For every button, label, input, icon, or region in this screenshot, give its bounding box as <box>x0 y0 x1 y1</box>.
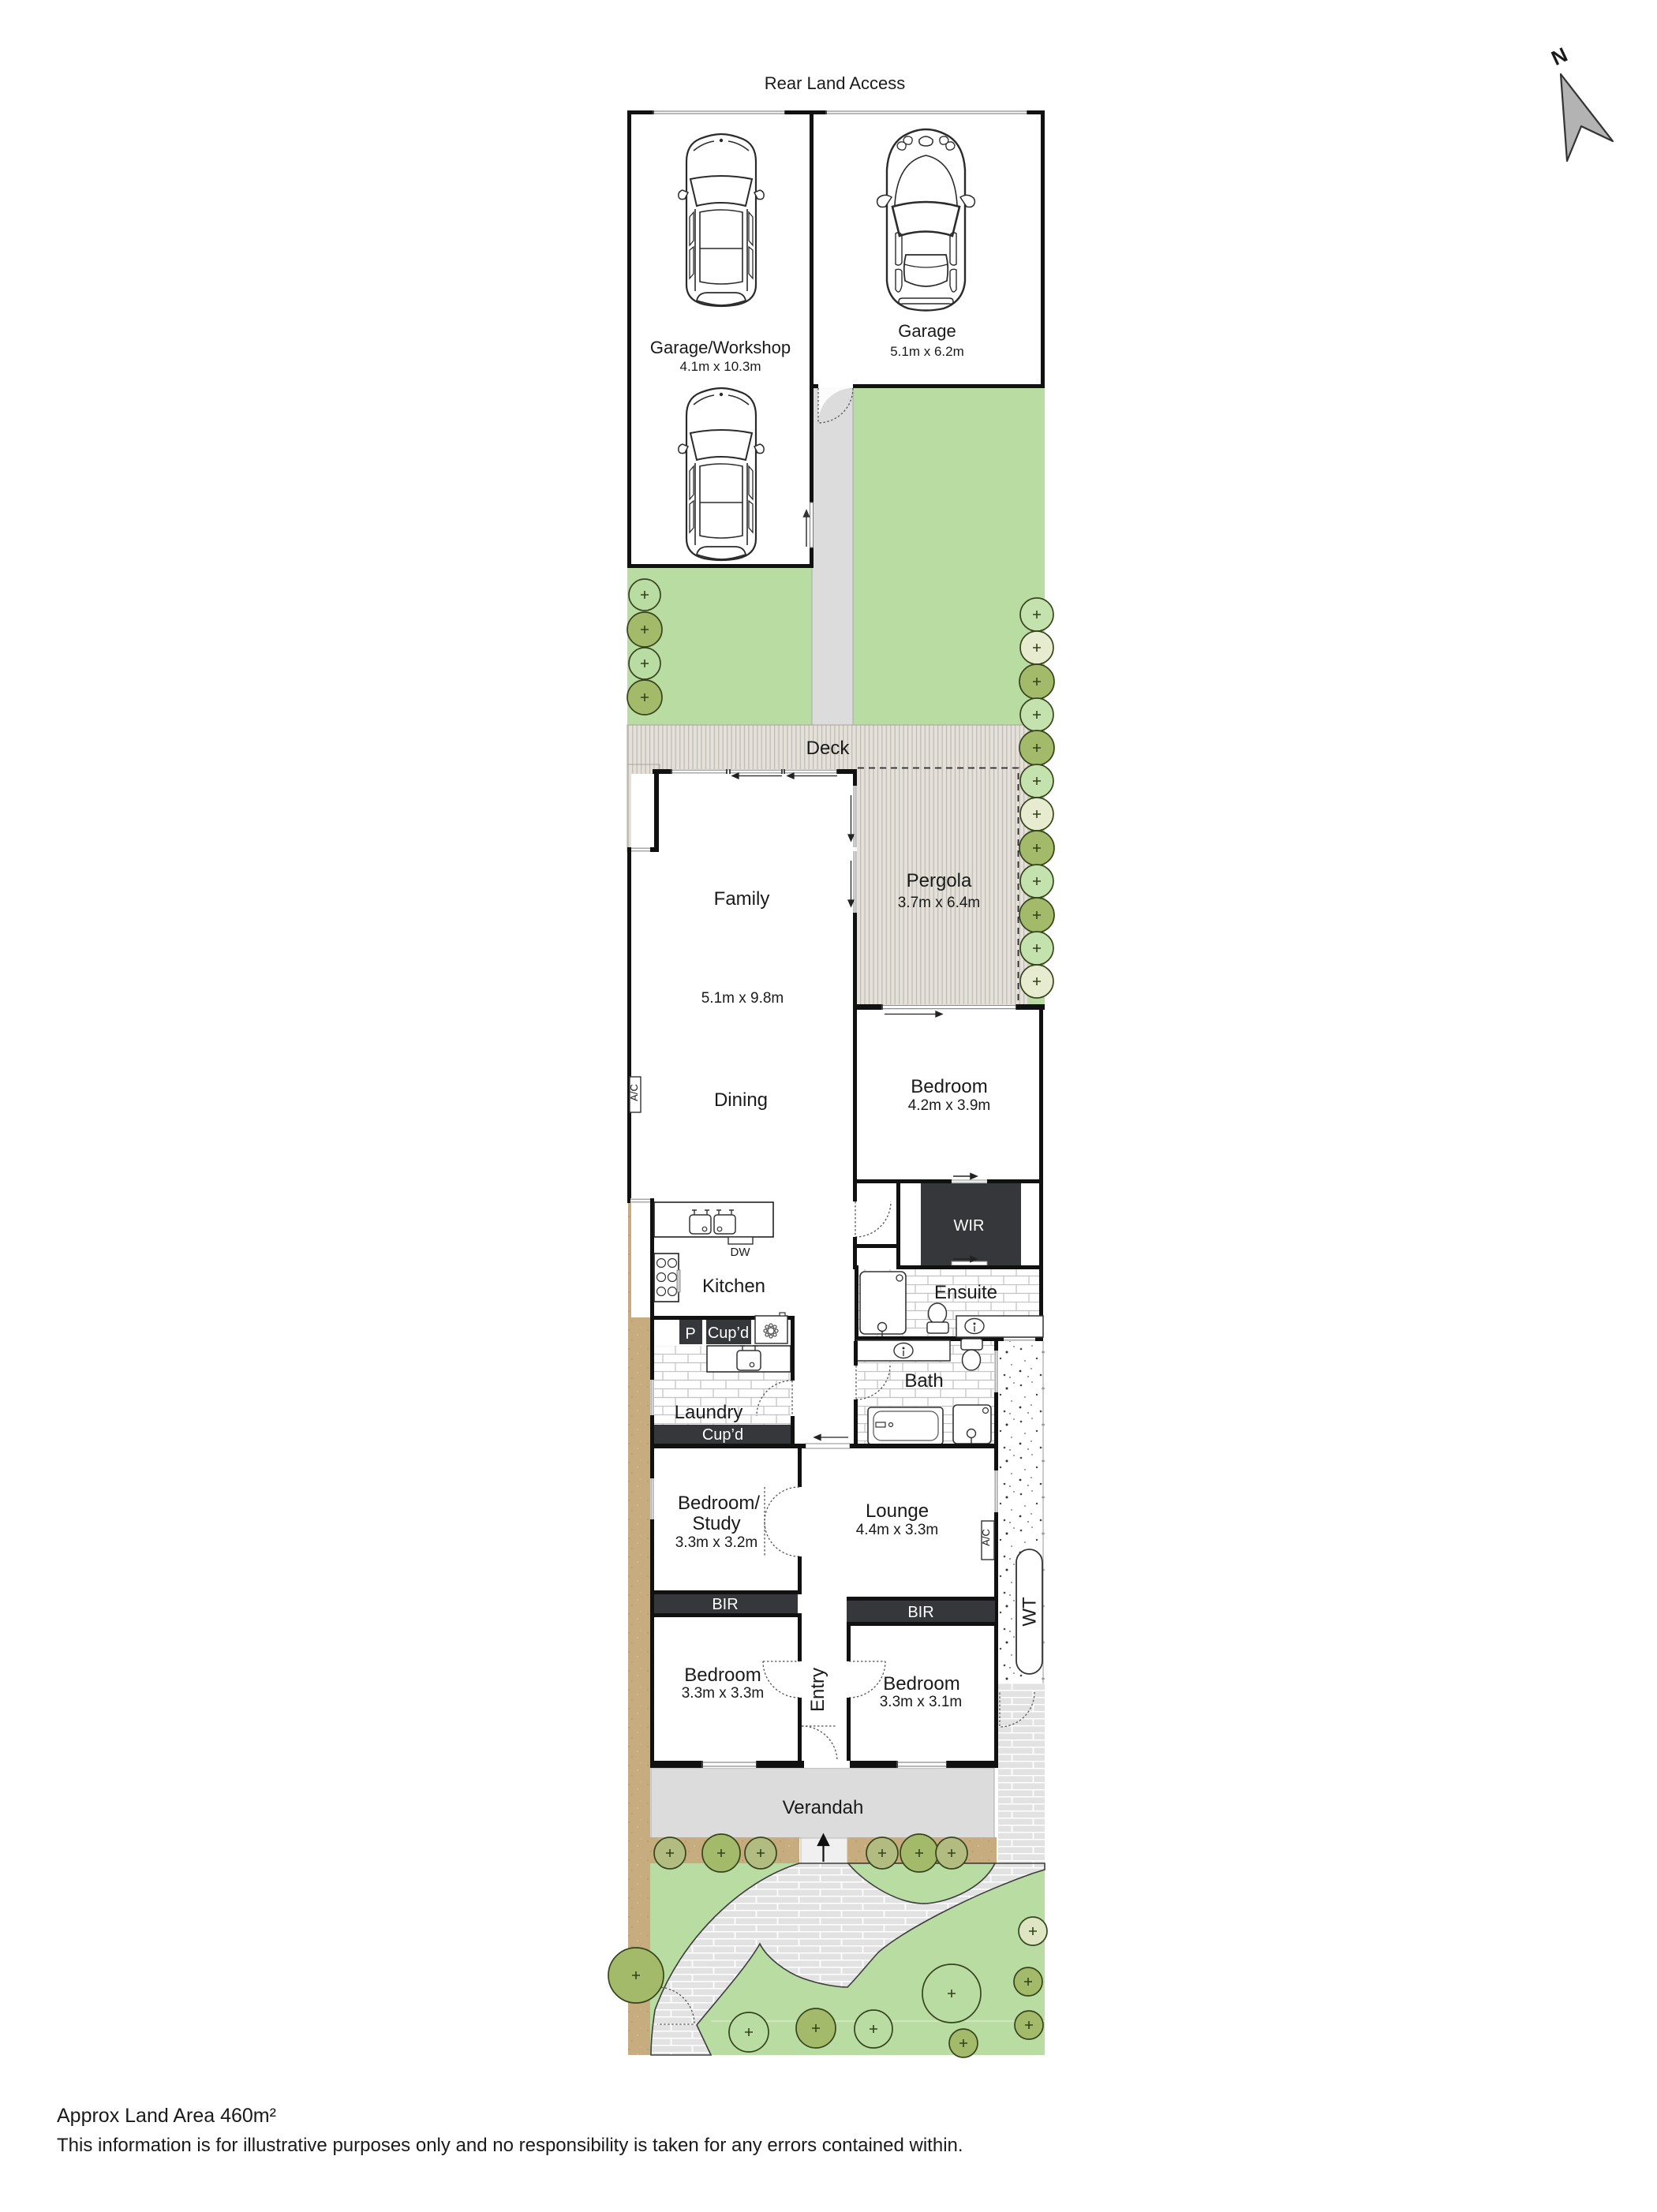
svg-text:Ensuite: Ensuite <box>934 1282 997 1303</box>
svg-text:Pergola: Pergola <box>907 870 972 891</box>
svg-text:Bedroom/: Bedroom/ <box>678 1493 760 1514</box>
svg-text:WT: WT <box>1019 1597 1041 1627</box>
svg-text:3.7m x 6.4m: 3.7m x 6.4m <box>898 895 981 911</box>
svg-text:A/C: A/C <box>980 1529 992 1546</box>
svg-text:4.1m x 10.3m: 4.1m x 10.3m <box>680 359 761 374</box>
svg-text:BIR: BIR <box>907 1604 933 1621</box>
svg-text:This information is for illust: This information is for illustrative pur… <box>57 2135 963 2156</box>
svg-text:Entry: Entry <box>807 1668 828 1712</box>
svg-text:Garage: Garage <box>898 321 956 341</box>
svg-text:Bedroom: Bedroom <box>883 1673 959 1694</box>
svg-text:DW: DW <box>731 1246 751 1259</box>
svg-text:Study: Study <box>692 1513 740 1534</box>
svg-text:Bath: Bath <box>904 1370 943 1392</box>
svg-text:Lounge: Lounge <box>866 1500 929 1522</box>
svg-text:P: P <box>685 1325 695 1343</box>
svg-text:Deck: Deck <box>806 738 851 759</box>
svg-text:Bedroom: Bedroom <box>911 1076 987 1097</box>
svg-text:Rear Land Access: Rear Land Access <box>765 73 906 93</box>
svg-text:A/C: A/C <box>628 1084 640 1101</box>
svg-text:3.3m x 3.2m: 3.3m x 3.2m <box>675 1534 758 1551</box>
svg-text:Kitchen: Kitchen <box>702 1276 765 1297</box>
svg-text:4.2m x 3.9m: 4.2m x 3.9m <box>908 1097 991 1114</box>
svg-text:5.1m x 6.2m: 5.1m x 6.2m <box>890 344 964 359</box>
svg-text:Cup’d: Cup’d <box>702 1426 743 1444</box>
svg-text:3.3m x 3.1m: 3.3m x 3.1m <box>880 1694 963 1710</box>
svg-text:Bedroom: Bedroom <box>684 1665 761 1686</box>
svg-text:WIR: WIR <box>954 1217 985 1235</box>
svg-text:Dining: Dining <box>714 1089 768 1111</box>
svg-text:BIR: BIR <box>712 1596 738 1613</box>
svg-text:Garage/Workshop: Garage/Workshop <box>650 338 791 357</box>
svg-text:Cup’d: Cup’d <box>708 1325 749 1342</box>
svg-text:Laundry: Laundry <box>675 1402 743 1423</box>
svg-text:3.3m x 3.3m: 3.3m x 3.3m <box>682 1685 765 1702</box>
svg-text:5.1m x 9.8m: 5.1m x 9.8m <box>701 990 784 1007</box>
svg-text:Family: Family <box>714 888 770 910</box>
svg-text:Verandah: Verandah <box>783 1797 864 1818</box>
svg-text:Approx Land Area 460m²: Approx Land Area 460m² <box>57 2105 276 2127</box>
svg-text:4.4m x 3.3m: 4.4m x 3.3m <box>856 1522 939 1538</box>
